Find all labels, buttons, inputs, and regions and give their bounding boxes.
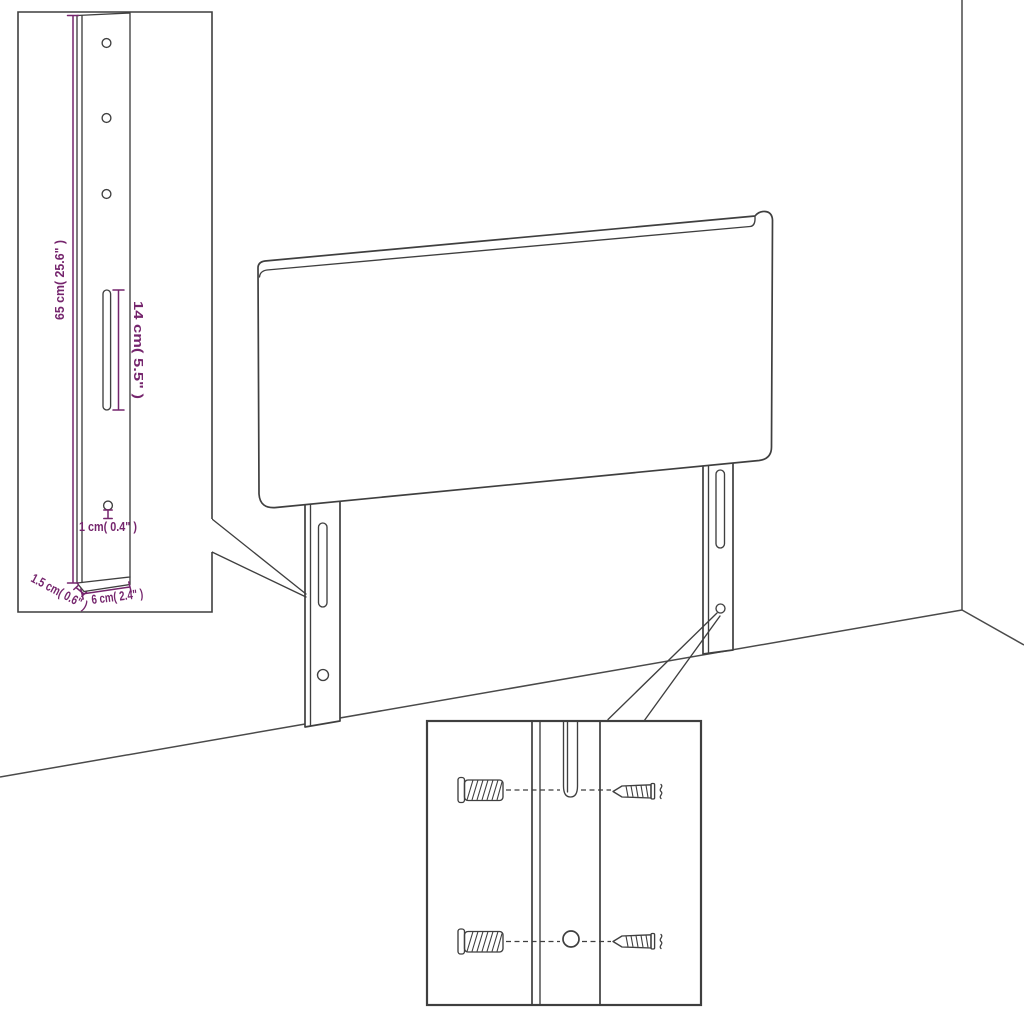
callout-line-upper xyxy=(212,519,306,594)
callout-line-lower xyxy=(212,552,306,597)
callout-line-hole-left xyxy=(608,613,717,720)
dim-label-slot-length: 14 cm( 5.5" ) xyxy=(131,301,146,399)
dim-label-hole-diameter: 1 cm( 0.4" ) xyxy=(79,519,137,534)
bracket-inset: 65 cm( 25.6" ) 14 cm( 5.5" ) 1 cm( 0.4" … xyxy=(18,12,212,613)
headboard-dimension-diagram: 65 cm( 25.6" ) 14 cm( 5.5" ) 1 cm( 0.4" … xyxy=(0,0,1024,1024)
panel-body xyxy=(258,211,773,507)
callout-wedge-left xyxy=(212,519,306,597)
bracket-drawing xyxy=(77,13,130,592)
dim-label-bracket-height: 65 cm( 25.6" ) xyxy=(52,240,67,320)
headboard-left-leg xyxy=(305,477,340,727)
diagram-canvas: 65 cm( 25.6" ) 14 cm( 5.5" ) 1 cm( 0.4" … xyxy=(0,0,1024,1024)
mounting-inset xyxy=(427,721,701,1005)
callout-line-hole-right xyxy=(644,616,720,721)
floor-wall-right-line xyxy=(962,610,1024,645)
headboard-panel xyxy=(258,211,773,507)
